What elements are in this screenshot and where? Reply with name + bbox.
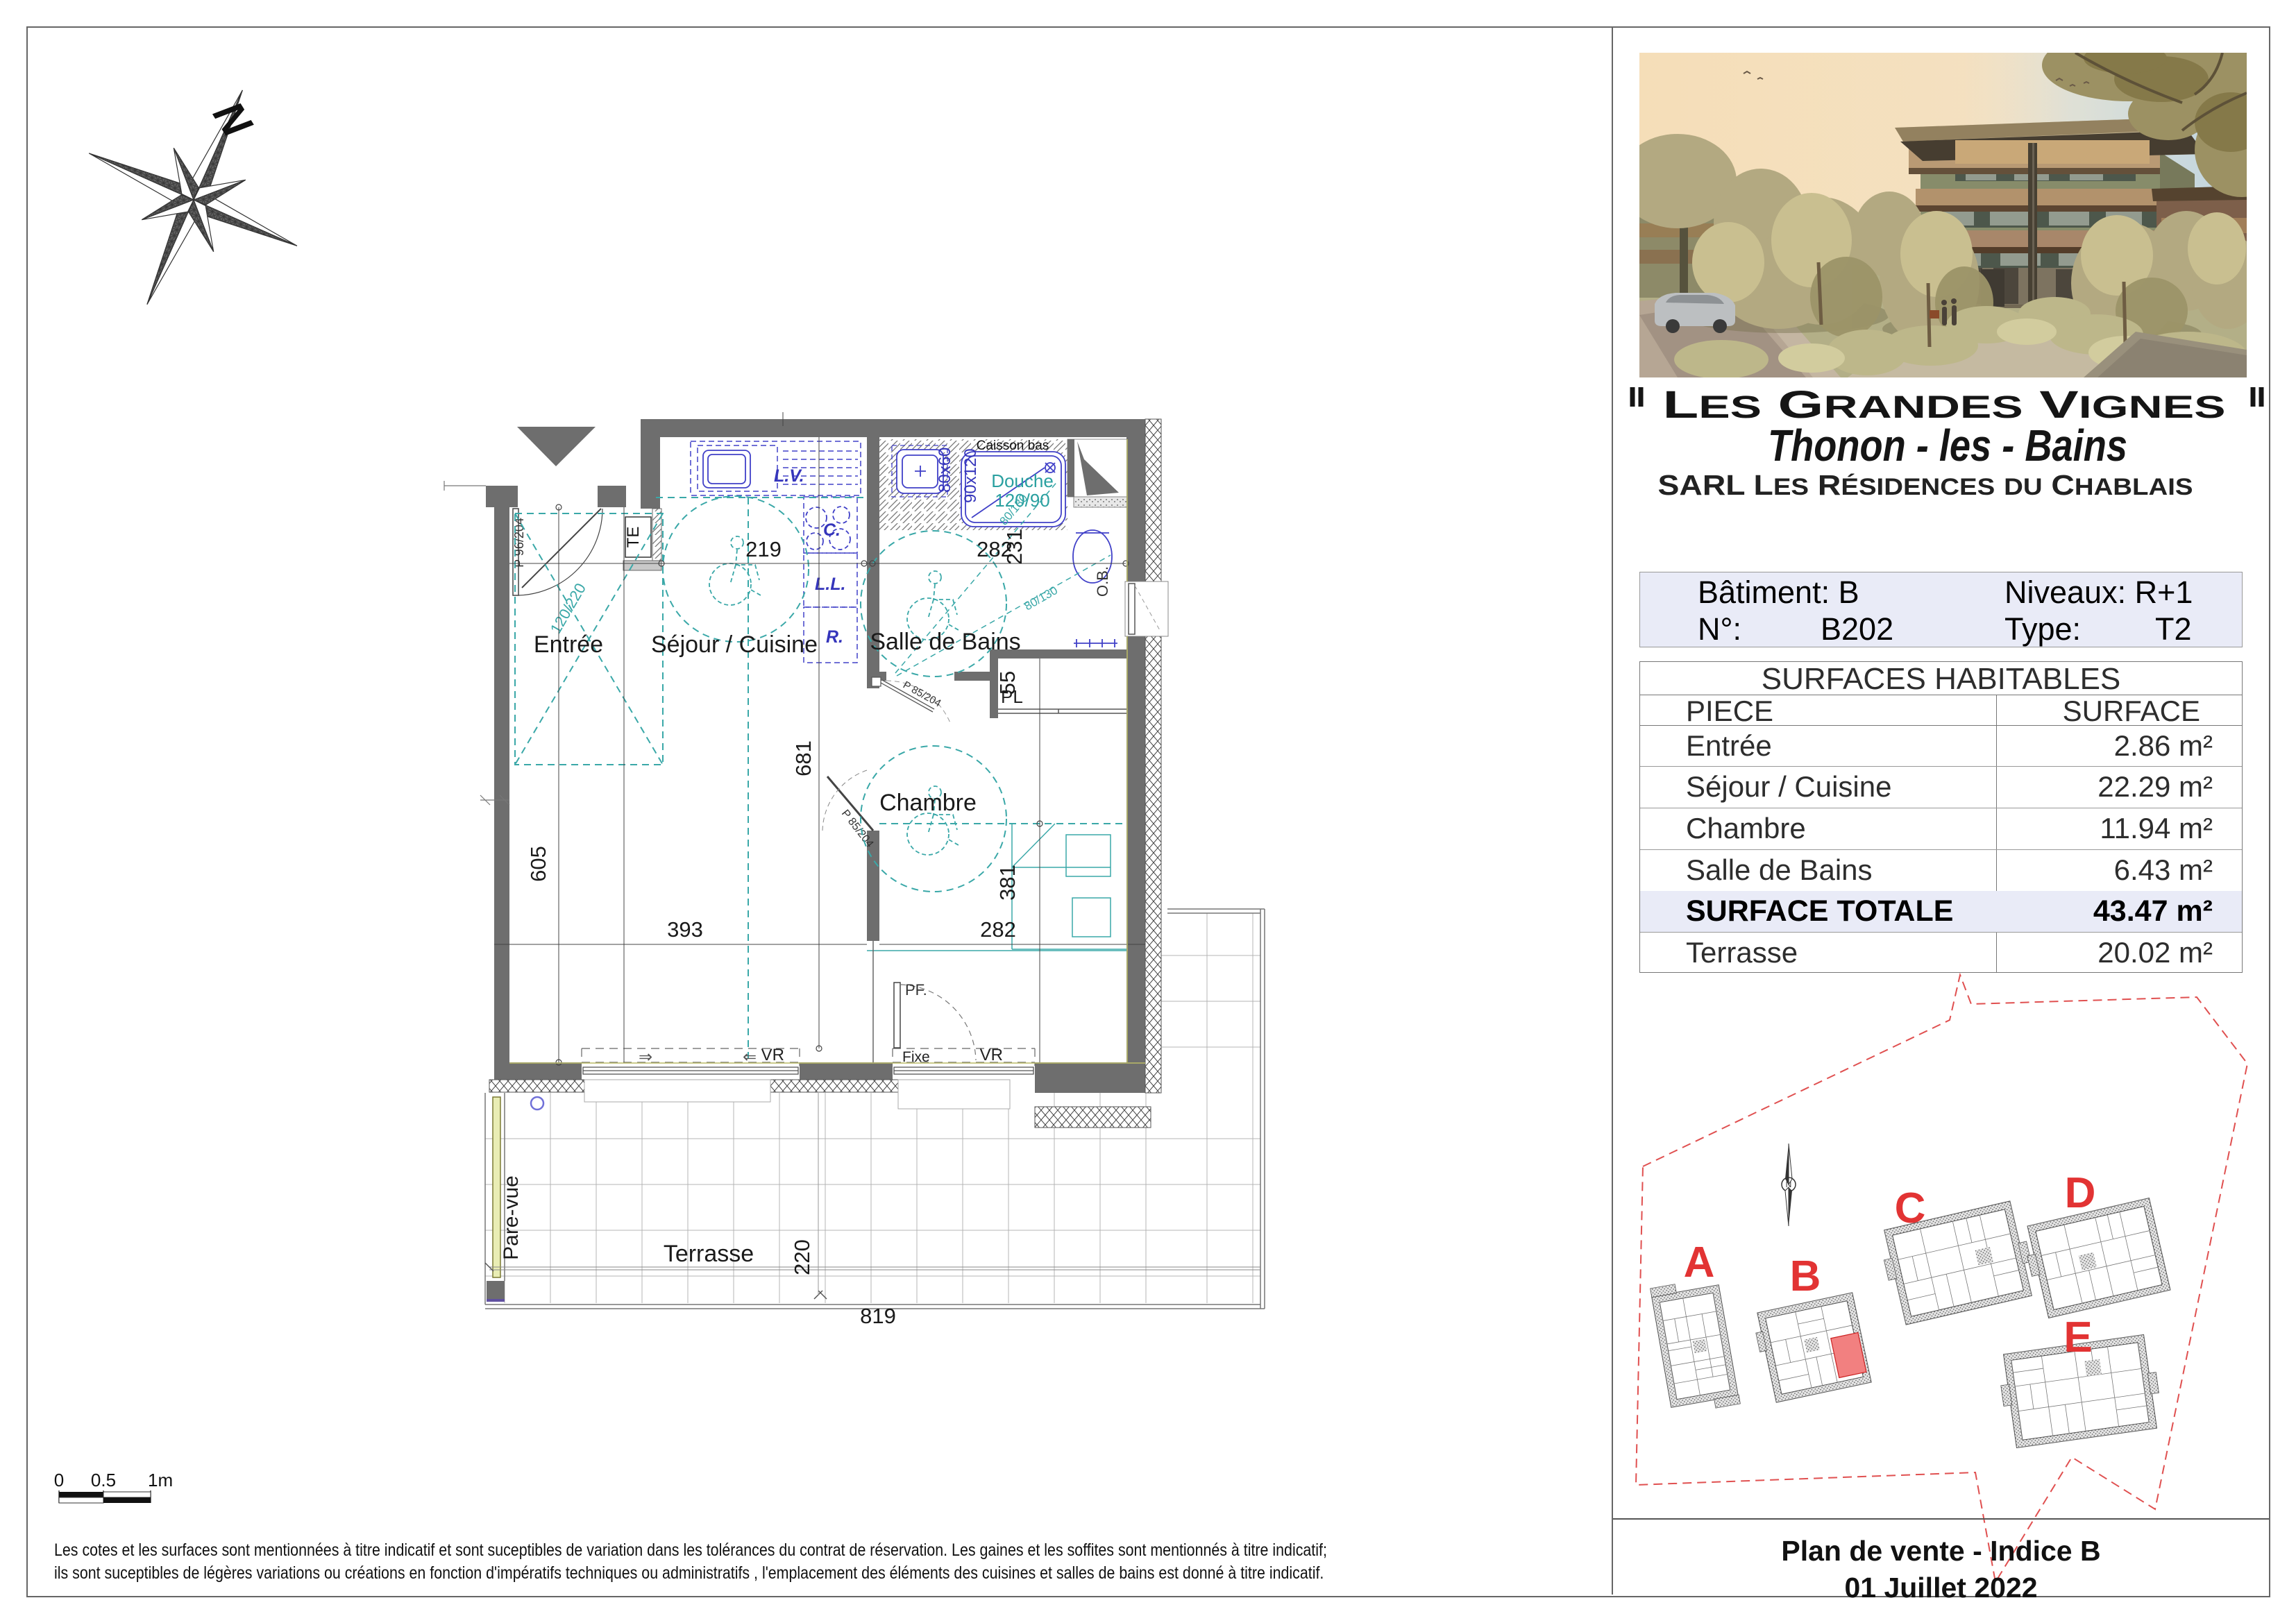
svg-text:90x120: 90x120 — [961, 448, 980, 503]
svg-text:605: 605 — [526, 846, 550, 882]
svg-text:231: 231 — [1002, 529, 1027, 565]
svg-text:C.: C. — [823, 520, 841, 540]
svg-text:282: 282 — [980, 917, 1016, 942]
svg-text:C: C — [1895, 1184, 1926, 1232]
svg-text:381: 381 — [995, 865, 1020, 901]
svg-text:O.B.: O.B. — [1094, 566, 1111, 597]
svg-text:L.V.: L.V. — [774, 466, 804, 486]
svg-text:Terrasse: Terrasse — [664, 1241, 754, 1267]
svg-text:N: N — [204, 93, 262, 146]
svg-text:B: B — [1790, 1252, 1821, 1300]
svg-text:55: 55 — [995, 671, 1020, 695]
svg-text:VR: VR — [980, 1046, 1003, 1064]
svg-text:Caisson bas: Caisson bas — [977, 439, 1049, 453]
svg-text:P 85/204: P 85/204 — [839, 808, 876, 850]
svg-text:L.L.: L.L. — [815, 575, 845, 594]
svg-text:393: 393 — [667, 917, 703, 942]
svg-text:LES GRANDES VIGNES: LES GRANDES VIGNES — [1663, 382, 2226, 426]
svg-text:0: 0 — [54, 1470, 64, 1490]
svg-text:Pare-vue: Pare-vue — [500, 1175, 523, 1260]
svg-text:⇐: ⇐ — [743, 1048, 757, 1067]
svg-text:Douche: Douche — [991, 470, 1054, 491]
svg-text:Séjour / Cuisine: Séjour / Cuisine — [651, 631, 818, 658]
svg-text:VR: VR — [761, 1046, 784, 1064]
svg-text:D: D — [2065, 1169, 2096, 1217]
svg-text:Thonon - les - Bains: Thonon - les - Bains — [1768, 420, 2127, 470]
svg-text:R.: R. — [826, 627, 843, 647]
svg-text:80x60: 80x60 — [936, 448, 954, 493]
svg-text:Salle de Bains: Salle de Bains — [870, 629, 1020, 655]
svg-text:PF.: PF. — [905, 981, 927, 999]
svg-text:681: 681 — [791, 740, 816, 776]
svg-text:TE: TE — [624, 527, 643, 548]
svg-text:A: A — [1684, 1239, 1715, 1286]
svg-text:0.5: 0.5 — [91, 1470, 116, 1490]
svg-text:SARL LES RÉSIDENCES DU CHABLAI: SARL LES RÉSIDENCES DU CHABLAIS — [1658, 469, 2193, 501]
svg-text:219: 219 — [745, 537, 782, 561]
svg-text:1m: 1m — [148, 1470, 173, 1490]
svg-text:E: E — [2063, 1314, 2092, 1361]
svg-text:220: 220 — [790, 1239, 814, 1275]
svg-text:⇒: ⇒ — [639, 1048, 652, 1067]
svg-text:80/130: 80/130 — [1022, 584, 1061, 613]
svg-text:Entrée: Entrée — [534, 631, 603, 658]
svg-text:819: 819 — [860, 1304, 896, 1328]
svg-text:Chambre: Chambre — [879, 790, 977, 816]
